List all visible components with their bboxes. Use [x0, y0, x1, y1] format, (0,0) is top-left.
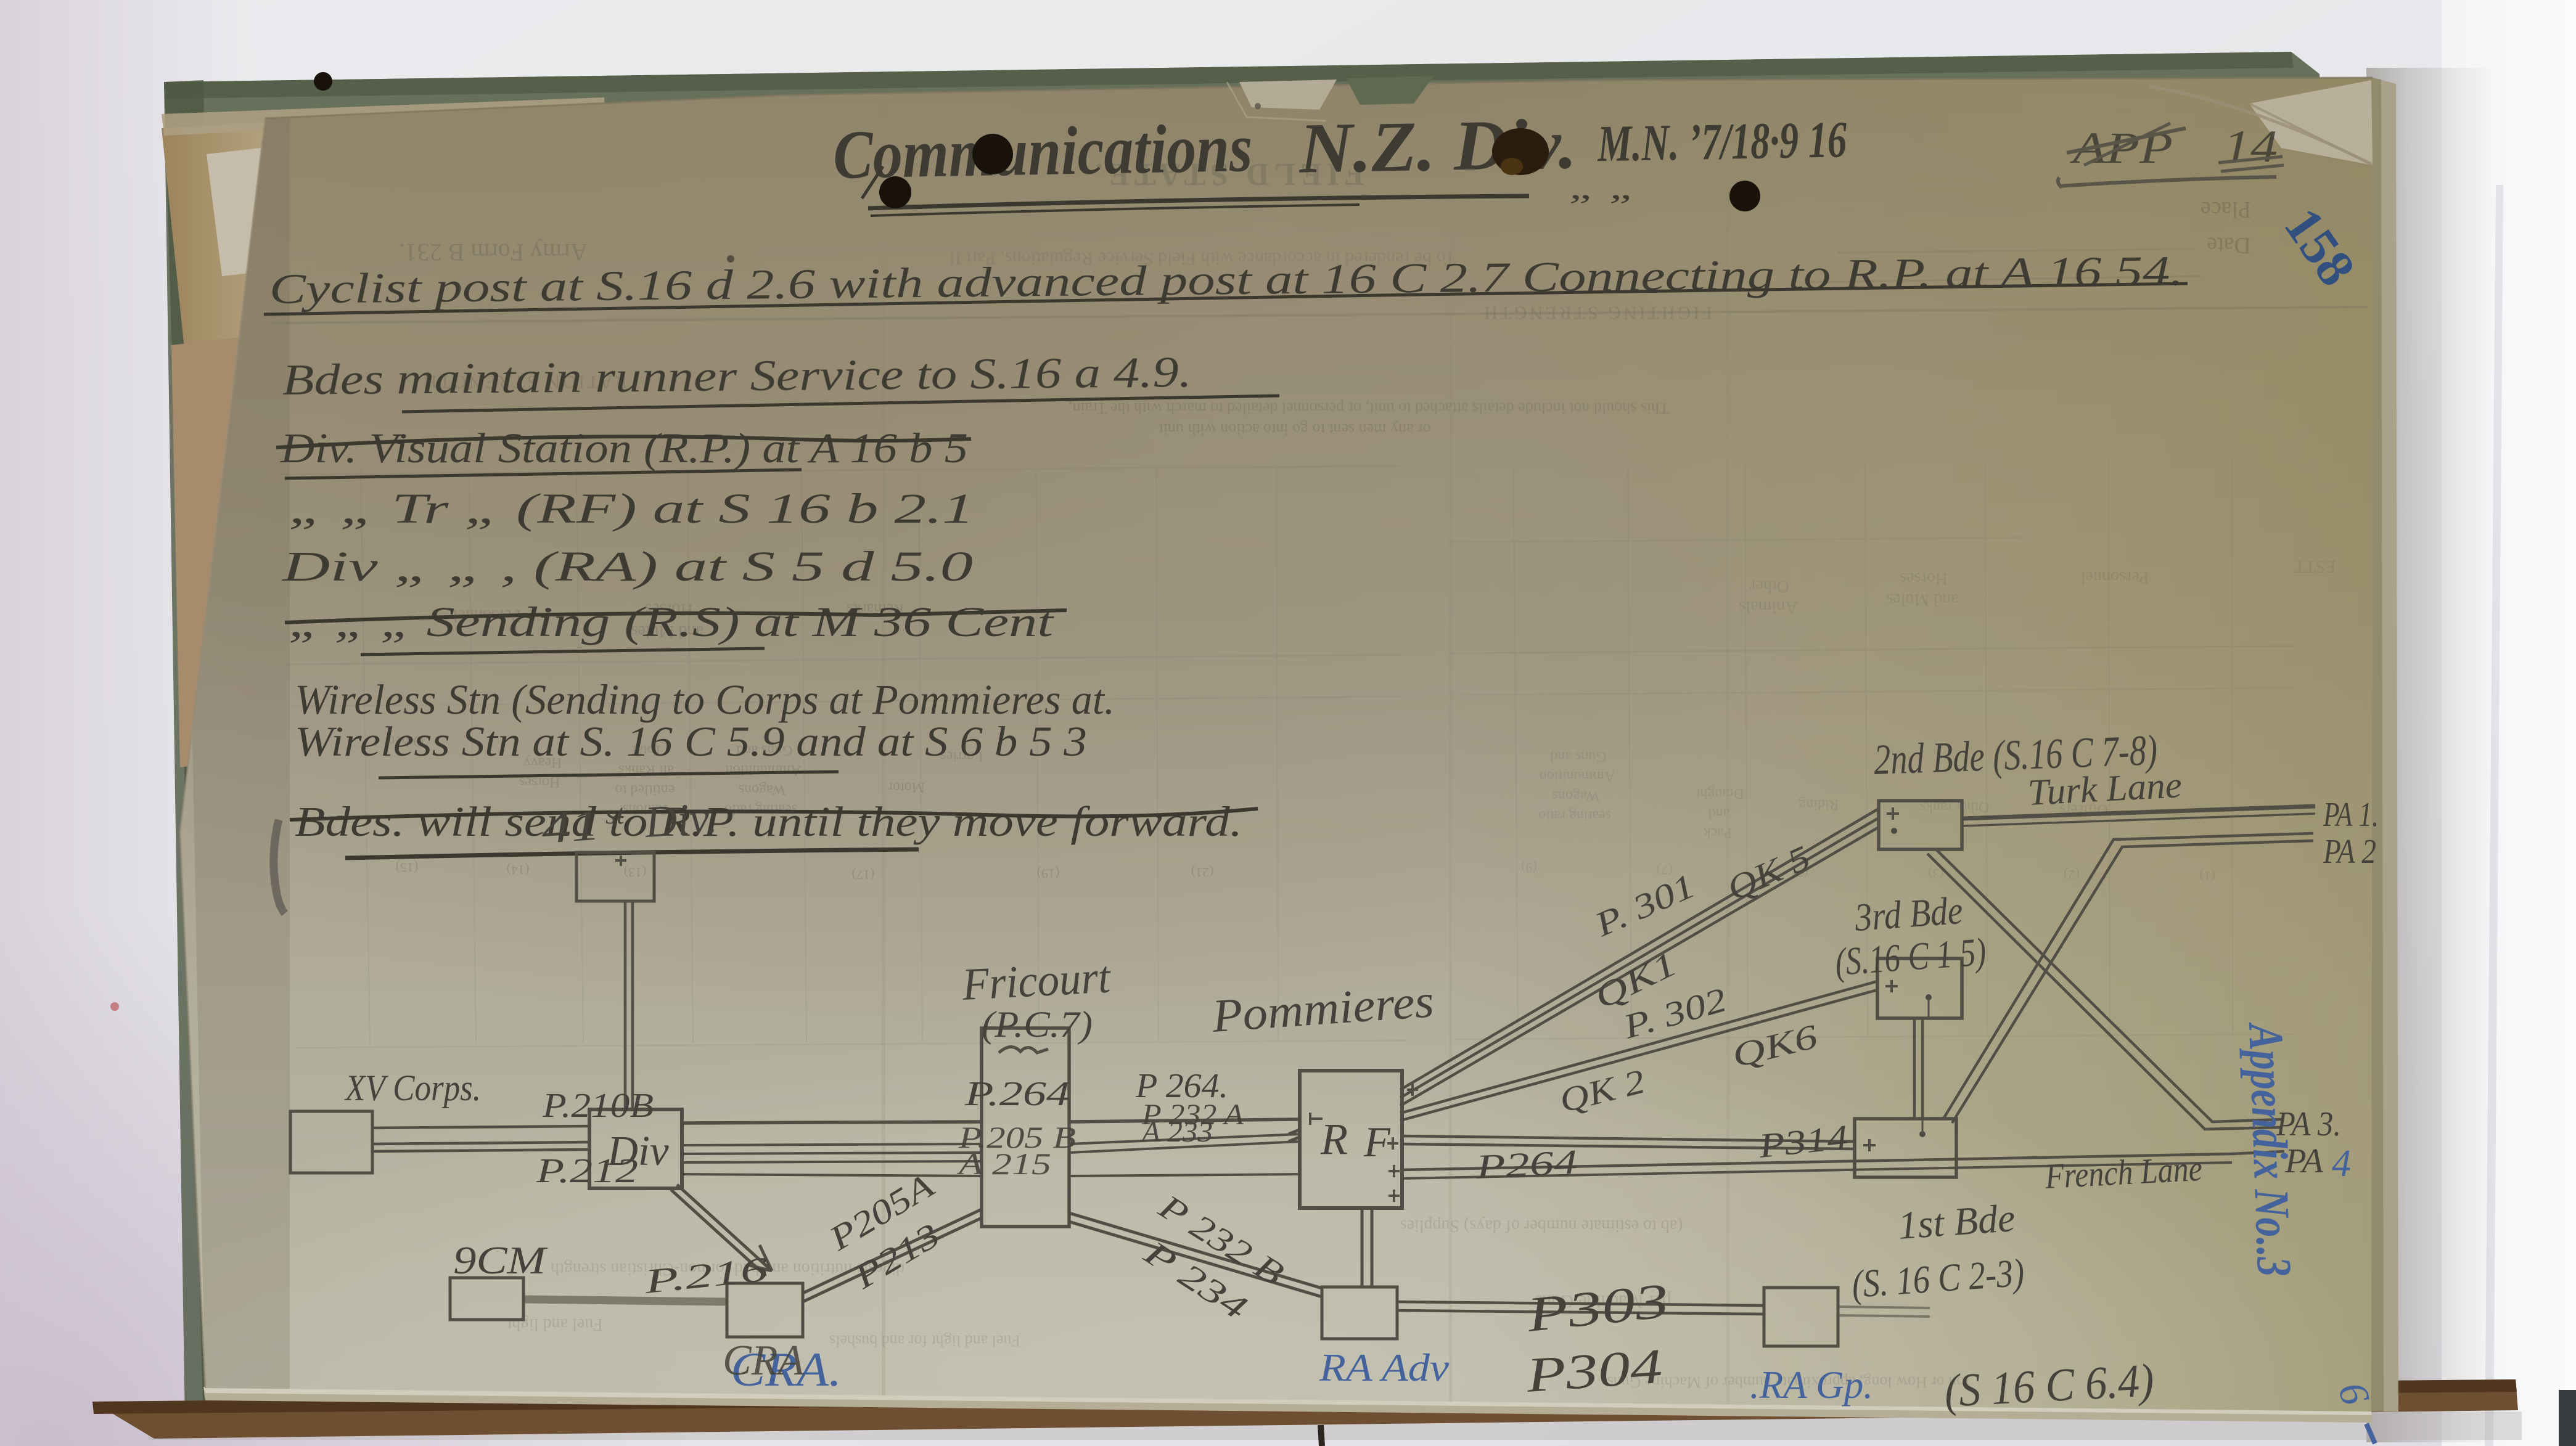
svg-text:14: 14 [2223, 121, 2278, 172]
svg-text:R: R [1320, 1114, 1348, 1164]
svg-text:(19): (19) [1037, 866, 1060, 881]
svg-text:Animals: Animals [1739, 597, 1798, 616]
svg-text:A 233: A 233 [1140, 1116, 1213, 1148]
svg-text:(1): (1) [2199, 868, 2215, 884]
svg-text:(17): (17) [852, 867, 875, 883]
svg-text:seating ratio: seating ratio [1538, 807, 1611, 823]
svg-text:(13): (13) [624, 865, 647, 880]
svg-text:(S 16 C 6.4): (S 16 C 6.4) [1943, 1354, 2155, 1417]
svg-text:(21): (21) [1191, 865, 1214, 880]
svg-text:Bdes. will send to R.P. unti: Bdes. will send to R.P. until they move … [295, 798, 1242, 845]
svg-text:Appendix No..3: Appendix No..3 [2238, 1021, 2301, 1278]
svg-text:9CM: 9CM [453, 1238, 548, 1282]
svg-text:Horses: Horses [1900, 569, 1948, 588]
svg-text:Div „ „ ,: Div „ „ , (RA) at S 5 d 5.0 [281, 543, 973, 590]
svg-text:Army Form B 231.: Army Form B 231. [399, 239, 588, 266]
svg-text:st: st [605, 798, 625, 830]
svg-text:(2): (2) [2064, 867, 2080, 883]
svg-text:P.264: P.264 [964, 1075, 1070, 1113]
svg-text:(15): (15) [396, 860, 419, 875]
svg-text:entitled to: entitled to [615, 782, 675, 798]
svg-text:(P.C.7): (P.C.7) [982, 1004, 1093, 1045]
svg-text:Guns and: Guns and [1550, 748, 1606, 764]
svg-text:.RA Gp.: .RA Gp. [1750, 1363, 1873, 1407]
svg-text:Wireless Stn (Sending to Corps: Wireless Stn (Sending to Corps at Pommie… [295, 676, 1115, 723]
svg-text:Draught: Draught [1696, 785, 1744, 801]
svg-text:FIGHTING STRENGTH: FIGHTING STRENGTH [1482, 303, 1712, 323]
svg-text:„ „ „ Sending (: „ „ „ Sending (R.S) at M 36 Cent [289, 598, 1054, 645]
svg-text:Place: Place [2201, 197, 2251, 223]
svg-text:Ammunition: Ammunition [1540, 768, 1615, 784]
svg-text:ESTT: ESTT [2295, 557, 2336, 576]
svg-text:Pack: Pack [1704, 825, 1733, 841]
svg-text:Div.: Div. [643, 793, 719, 847]
svg-text:P264: P264 [1474, 1143, 1578, 1187]
svg-text:A 215: A 215 [956, 1146, 1051, 1181]
svg-text:M.N. ’7/18·9 16: M.N. ’7/18·9 16 [1596, 111, 1847, 173]
svg-text:Wagons: Wagons [1553, 788, 1600, 804]
svg-text:Other: Other [1749, 576, 1789, 595]
svg-text:and: and [1708, 805, 1730, 821]
svg-text:Wireless Stn at S. 16 C 5.9: Wireless Stn at S. 16 C 5.9 and at S 6 b… [295, 718, 1087, 765]
svg-text:„ „ Tr „ (: „ „ Tr „ (RF) at S 16 b 2.1 [289, 485, 974, 532]
svg-text:Fricourt: Fricourt [961, 952, 1113, 1010]
svg-text:or any men sent to go into act: or any men sent to go into action with u… [1159, 420, 1431, 438]
svg-text:Date: Date [2207, 232, 2251, 258]
svg-text:41: 41 [540, 800, 602, 853]
svg-text:1st Bde: 1st Bde [1897, 1196, 2016, 1248]
svg-text:Riding: Riding [1799, 796, 1839, 812]
svg-text:4: 4 [2332, 1143, 2351, 1185]
svg-text:CRA: CRA [723, 1337, 804, 1384]
svg-text:RA Adv: RA Adv [1319, 1346, 1450, 1389]
svg-text:Wagons: Wagons [739, 782, 786, 798]
svg-text:and Mules: and Mules [1886, 590, 1958, 609]
svg-text:Bdes maintain runner Service t: Bdes maintain runner Service to S.16 a 4… [282, 348, 1192, 404]
svg-text:Fuel and light: Fuel and light [507, 1315, 603, 1334]
svg-text:This should not include detail: This should not include details attached… [1069, 399, 1669, 417]
svg-text:PA 1.: PA 1. [2323, 796, 2379, 834]
svg-text:P.212: P.212 [536, 1152, 638, 1190]
svg-text:Fuel and light for and bushels: Fuel and light for and bushels [829, 1332, 1020, 1350]
svg-text:Turk Lane: Turk Lane [2027, 764, 2183, 813]
svg-text:French Lane: French Lane [2043, 1148, 2203, 1196]
svg-text:XV Corps.: XV Corps. [344, 1068, 481, 1108]
svg-text:F: F [1363, 1119, 1391, 1166]
svg-text:P304: P304 [1524, 1339, 1664, 1403]
svg-text:„ „: „ „ [1569, 171, 1637, 206]
svg-text:Div. Visual Station (R.P.) at: Div. Visual Station (R.P.) at A 16 b 5 [280, 425, 968, 472]
svg-text:Personnel: Personnel [2081, 568, 2149, 587]
svg-text:P.210B: P.210B [542, 1087, 654, 1125]
svg-text:(14): (14) [507, 862, 530, 878]
svg-text:(ab to estimate number of days: (ab to estimate number of days) Supplies [1400, 1216, 1683, 1235]
svg-text:(9): (9) [1521, 860, 1537, 875]
svg-text:Motor: Motor [888, 779, 925, 795]
svg-text:PA 2: PA 2 [2323, 833, 2376, 871]
